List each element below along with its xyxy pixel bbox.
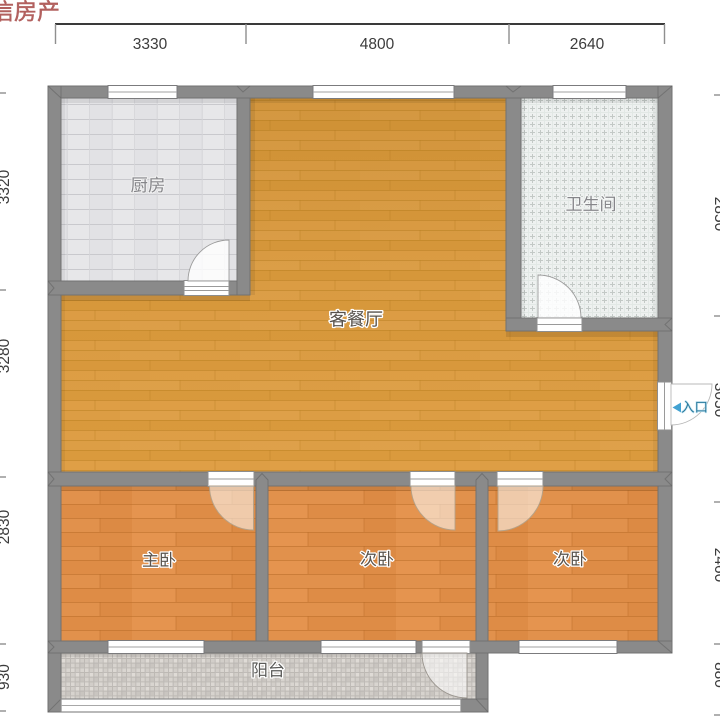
svg-text:4800: 4800 (360, 36, 395, 53)
svg-text:2830: 2830 (0, 509, 13, 544)
svg-text:3280: 3280 (0, 338, 13, 373)
svg-text:930: 930 (0, 664, 13, 690)
svg-text:3330: 3330 (133, 36, 168, 53)
svg-text:2460: 2460 (711, 548, 720, 583)
svg-text:2850: 2850 (711, 197, 720, 232)
svg-text:2640: 2640 (570, 36, 605, 53)
svg-text:3320: 3320 (0, 169, 13, 204)
svg-text:880: 880 (711, 662, 720, 688)
svg-text:3050: 3050 (711, 383, 720, 418)
